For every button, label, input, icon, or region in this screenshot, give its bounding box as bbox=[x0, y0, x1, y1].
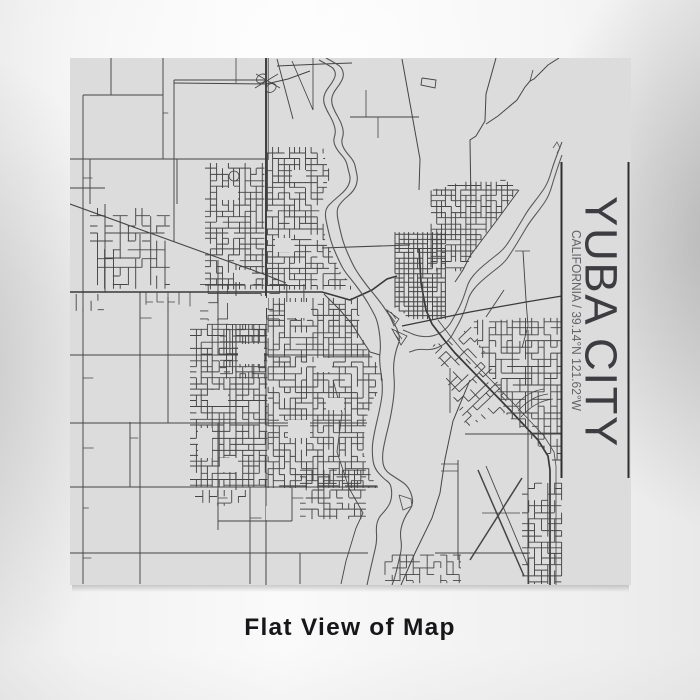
svg-text:CALIFORNIA / 39.14°N 121.62°W: CALIFORNIA / 39.14°N 121.62°W bbox=[569, 230, 584, 412]
